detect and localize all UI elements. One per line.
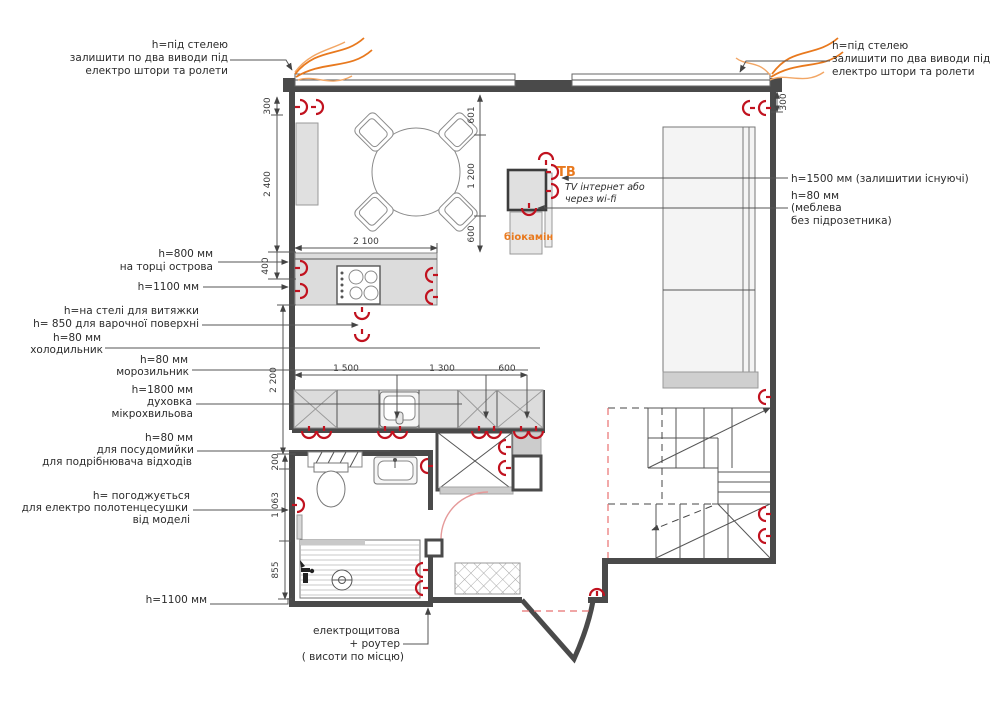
outlet-icon (759, 101, 771, 115)
note-top-left-1: h=під стелею (152, 39, 228, 51)
staircase (608, 408, 770, 558)
entry (455, 563, 604, 611)
floor-plan-canvas: 300 2 400 400 2 200 200 1 063 855 601 1 … (0, 0, 1000, 722)
dim-label: 300 (263, 97, 273, 114)
outlet-icon (743, 101, 755, 115)
dim-label: 300 (779, 93, 789, 110)
outlet-icon (759, 507, 771, 521)
dim-label: 200 (271, 453, 281, 470)
note-dishwasher-2: для посудомийки (97, 444, 194, 456)
toilet (308, 452, 362, 507)
note-dishwasher-1: h=80 мм (145, 432, 193, 444)
note-h1100-top: h=1100 мм (138, 281, 199, 293)
note-panel-3: ( висоти по місцю) (302, 651, 404, 663)
dim-label: 600 (467, 225, 477, 242)
outlet-icon (295, 100, 307, 114)
outlet-icon (355, 307, 369, 319)
dim-label: 1 500 (333, 364, 359, 374)
dim-label: 1 300 (429, 364, 455, 374)
bathroom-sink (374, 457, 417, 484)
floor-plan-drawing: 300 2 400 400 2 200 200 1 063 855 601 1 … (0, 0, 1000, 722)
note-right-bez: без підрозетника) (791, 215, 892, 227)
note-fridge-1: h=80 мм (53, 332, 101, 344)
note-h1100-bottom: h=1100 мм (146, 594, 207, 606)
note-towel-3: від моделі (133, 514, 190, 526)
note-island-1: h=800 мм (158, 248, 213, 260)
tv-label: ТВ (557, 165, 576, 180)
kitchen-sink (380, 392, 419, 427)
wardrobe (296, 123, 318, 205)
tv-note-2: через wi-fi (565, 194, 617, 205)
hall-door-arc (441, 492, 488, 539)
dining-set (353, 111, 479, 233)
note-right-h80: h=80 мм (791, 190, 839, 202)
dim-label: 600 (498, 364, 515, 374)
note-top-right-1: h=під стелею (832, 40, 908, 52)
outlet-icon (355, 329, 369, 341)
note-towel-2: для електро полотенцесушки (22, 502, 188, 514)
shower (300, 540, 420, 598)
note-right-mebleva: (меблева (791, 202, 842, 214)
tv-screen (508, 170, 546, 210)
note-panel-2: + роутер (349, 638, 400, 650)
doormat (455, 563, 520, 594)
note-hood-1: h=на стелі для витяжки (64, 305, 199, 317)
kitchen-island (295, 253, 437, 305)
note-panel-1: електрощитова (313, 625, 400, 637)
note-oven-2: духовка (147, 396, 192, 408)
note-top-left-2: залишити по два виводи під (70, 52, 228, 64)
note-oven-1: h=1800 мм (132, 384, 193, 396)
note-freezer-2: морозильник (116, 366, 189, 378)
dim-label: 601 (467, 106, 477, 123)
towel-rail (297, 515, 302, 539)
cooktop (337, 266, 380, 304)
note-top-left-3: електро штори та ролети (85, 65, 228, 77)
dim-label: 400 (261, 257, 271, 274)
tv-note-1: TV інтернет або (565, 182, 645, 193)
outlet-icon (311, 100, 323, 114)
note-island-2: на торці острова (120, 261, 213, 273)
outlet-icon (539, 153, 553, 165)
note-towel-1: h= погоджується (93, 490, 190, 502)
note-right-h1500: h=1500 мм (залишитии існуючі) (791, 173, 969, 185)
kitchen-counter (294, 390, 543, 428)
note-top-right-3: електро штори та ролети (832, 66, 975, 78)
dim-label: 2 100 (353, 237, 379, 247)
vent-shaft (437, 432, 541, 539)
dim-label: 1 063 (271, 492, 281, 518)
sofa-base (663, 372, 758, 388)
note-freezer-1: h=80 мм (140, 354, 188, 366)
outlet-icon (759, 390, 771, 404)
doorbell-icon (590, 589, 604, 596)
dim-label: 855 (271, 561, 281, 578)
dim-label: 1 200 (467, 163, 477, 189)
note-dishwasher-3: для подрібнювача відходів (42, 456, 192, 468)
note-oven-3: мікрохвильова (112, 408, 193, 420)
dim-label: 2 400 (263, 171, 273, 197)
outlet-icon (759, 529, 771, 543)
sofa (663, 127, 758, 388)
note-fridge-2: холодильник (30, 344, 103, 356)
note-top-right-2: залишити по два виводи під (832, 53, 990, 65)
closet (513, 456, 541, 490)
dim-label: 2 200 (269, 367, 279, 393)
biofireplace-label: біокамін (504, 231, 553, 243)
note-hood-2: h= 850 для варочної поверхні (33, 318, 199, 330)
electrical-niche (426, 540, 442, 556)
